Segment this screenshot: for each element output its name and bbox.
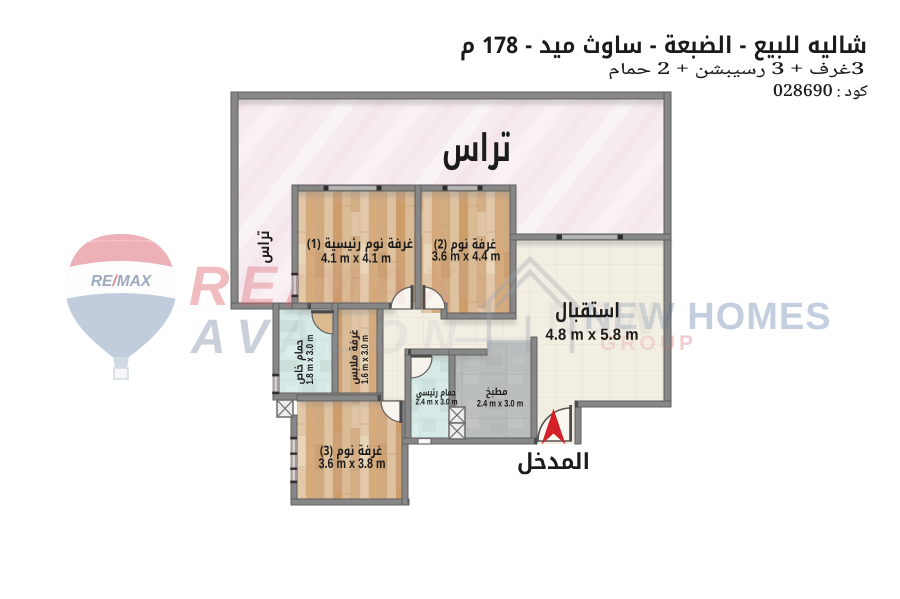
svg-text:NEW: NEW xyxy=(546,292,659,344)
svg-text:RE/MAX: RE/MAX xyxy=(91,273,153,290)
